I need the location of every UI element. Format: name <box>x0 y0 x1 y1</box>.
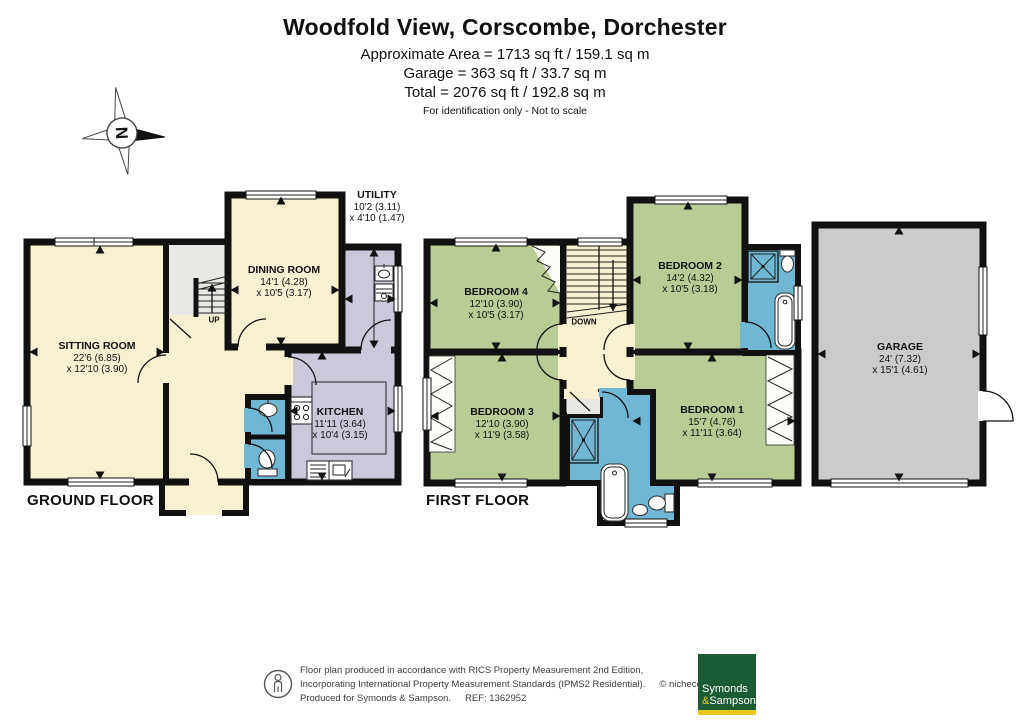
person-scale-icon <box>262 667 294 701</box>
room-label-dining: DINING ROOM 14'1 (4.28) x 10'5 (3.17) <box>248 265 320 300</box>
room-label-garage: GARAGE 24' (7.32) x 15'1 (4.61) <box>872 342 927 377</box>
room-label-utility: UTILITY 10'2 (3.11) x 4'10 (1.47) <box>349 190 404 225</box>
compass-north-icon: N <box>76 82 169 181</box>
room-label-kitchen: KITCHEN 11'11 (3.64) x 10'4 (3.15) <box>312 407 367 442</box>
room-label-bedroom1: BEDROOM 1 15'7 (4.76) x 11'11 (3.64) <box>680 405 744 440</box>
stairs-up-label: UP <box>208 316 219 325</box>
footer-line2: Incorporating International Property Mea… <box>300 678 736 692</box>
symonds-sampson-logo: Symonds &Sampson <box>698 654 756 715</box>
first-floor-label: FIRST FLOOR <box>426 492 529 509</box>
floor-plan-canvas: N <box>0 0 1024 724</box>
ensuite-bath-icon <box>775 293 795 349</box>
bathroom-basin-icon <box>633 505 648 516</box>
ensuite-toilet-icon <box>780 250 795 272</box>
room-label-bedroom3: BEDROOM 3 12'10 (3.90) x 11'9 (3.58) <box>470 407 534 442</box>
stairs-down-label: DOWN <box>571 318 596 327</box>
wardrobe-bedroom3 <box>429 356 455 452</box>
kitchen-sink-icon <box>307 461 352 480</box>
footer-text: Floor plan produced in accordance with R… <box>300 664 736 706</box>
ground-floor-label: GROUND FLOOR <box>27 492 154 509</box>
garage-side-door <box>978 391 1013 421</box>
wardrobe-bedroom1 <box>766 355 794 445</box>
logo-line2: &Sampson <box>702 695 756 707</box>
bathroom-toilet-icon <box>649 494 675 512</box>
room-label-bedroom4: BEDROOM 4 12'10 (3.90) x 10'5 (3.17) <box>464 287 528 322</box>
room-label-bedroom2: BEDROOM 2 14'2 (4.32) x 10'5 (3.18) <box>658 261 722 296</box>
footer-line3: Produced for Symonds & Sampson.REF: 1362… <box>300 692 736 706</box>
room-label-sitting: SITTING ROOM 22'6 (6.85) x 12'10 (3.90) <box>59 341 136 376</box>
reference-number: REF: 1362952 <box>465 693 526 704</box>
logo-line1: Symonds <box>702 683 756 695</box>
floorplan-page: Woodfold View, Corscombe, Dorchester App… <box>0 0 1024 724</box>
footer-line1: Floor plan produced in accordance with R… <box>300 664 736 678</box>
bathroom-bath-icon <box>601 464 628 521</box>
compass-n-letter: N <box>112 126 132 139</box>
utility-sink-icon <box>375 264 393 281</box>
first-floor-plan <box>423 196 802 527</box>
